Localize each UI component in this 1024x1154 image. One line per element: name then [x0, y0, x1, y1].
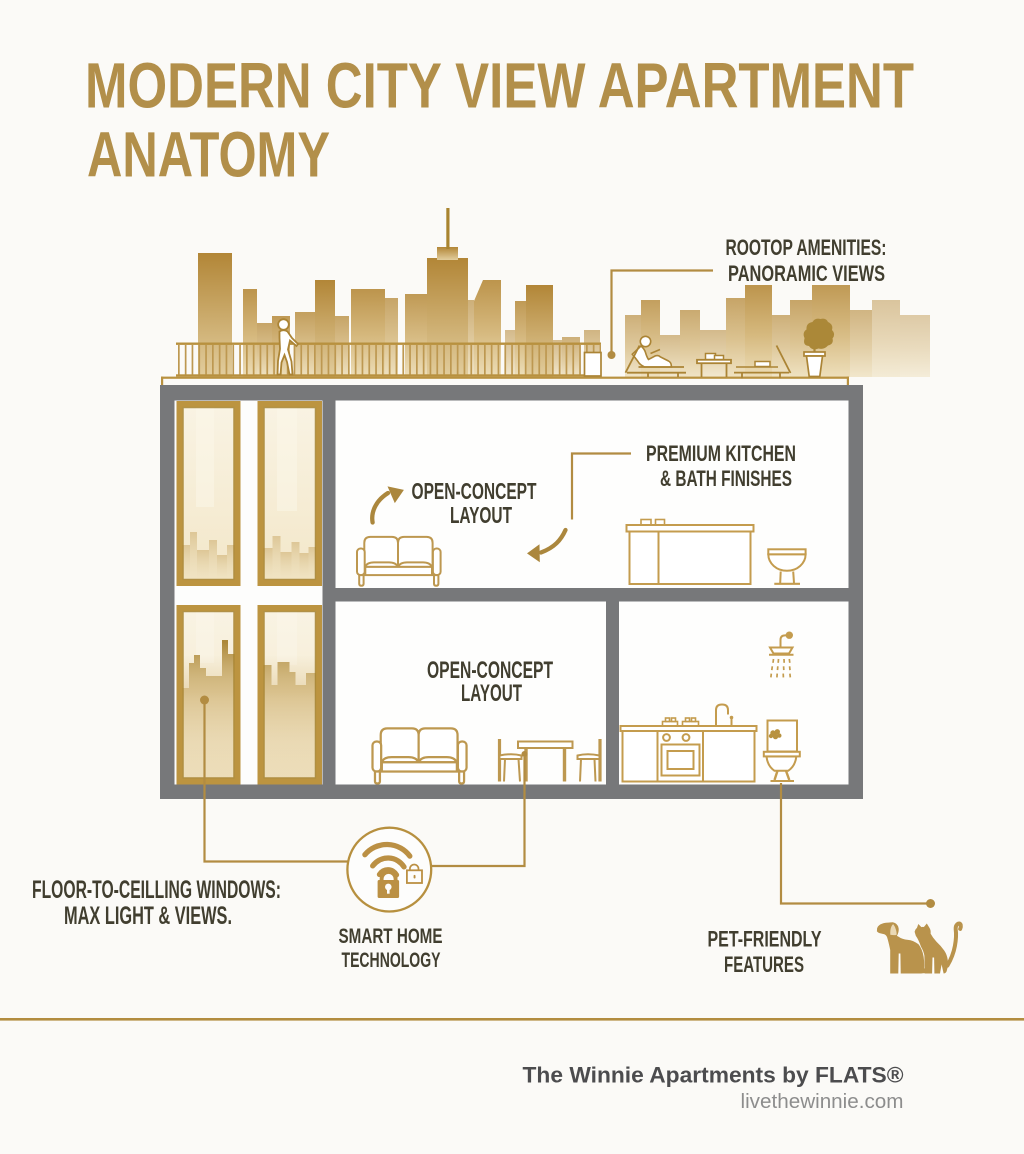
svg-text:SMART HOME: SMART HOME	[339, 925, 443, 948]
svg-text:LAYOUT: LAYOUT	[450, 502, 512, 528]
svg-text:ANATOMY: ANATOMY	[87, 119, 330, 191]
svg-text:The Winnie Apartments by FLATS: The Winnie Apartments by FLATS®	[523, 1063, 904, 1088]
svg-text:LAYOUT: LAYOUT	[461, 680, 522, 707]
svg-text:MAX LIGHT & VIEWS.: MAX LIGHT & VIEWS.	[64, 902, 232, 930]
svg-text:FLOOR-TO-CEILLING WINDOWS:: FLOOR-TO-CEILLING WINDOWS:	[32, 876, 281, 904]
svg-text:PANORAMIC VIEWS: PANORAMIC VIEWS	[728, 261, 885, 286]
svg-text:MODERN CITY VIEW APARTMENT: MODERN CITY VIEW APARTMENT	[85, 50, 914, 122]
svg-text:OPEN-CONCEPT: OPEN-CONCEPT	[412, 478, 537, 504]
svg-text:PREMIUM KITCHEN: PREMIUM KITCHEN	[646, 441, 796, 466]
svg-text:& BATH FINISHES: & BATH FINISHES	[660, 466, 792, 491]
svg-text:TECHNOLOGY: TECHNOLOGY	[342, 949, 441, 972]
svg-text:livethewinnie.com: livethewinnie.com	[741, 1091, 904, 1113]
svg-text:PET-FRIENDLY: PET-FRIENDLY	[708, 927, 822, 952]
svg-text:FEATURES: FEATURES	[724, 952, 804, 977]
svg-text:ROOTOP AMENITIES:: ROOTOP AMENITIES:	[726, 235, 887, 260]
